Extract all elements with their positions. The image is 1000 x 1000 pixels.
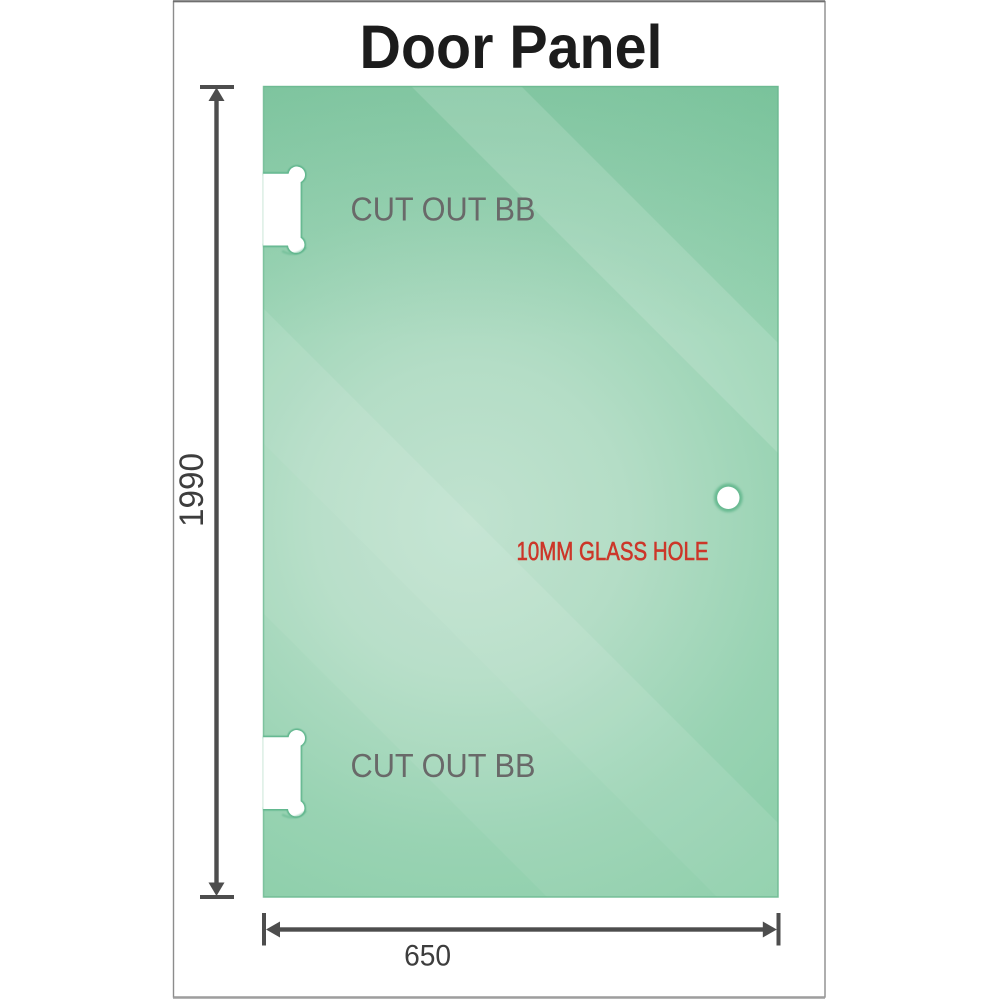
svg-text:1990: 1990 xyxy=(173,453,211,527)
svg-text:Door Panel: Door Panel xyxy=(360,13,663,81)
svg-text:CUT OUT BB: CUT OUT BB xyxy=(351,747,536,784)
svg-text:10MM GLASS HOLE: 10MM GLASS HOLE xyxy=(517,536,709,566)
svg-text:650: 650 xyxy=(404,939,451,972)
svg-text:CUT OUT BB: CUT OUT BB xyxy=(351,190,536,227)
